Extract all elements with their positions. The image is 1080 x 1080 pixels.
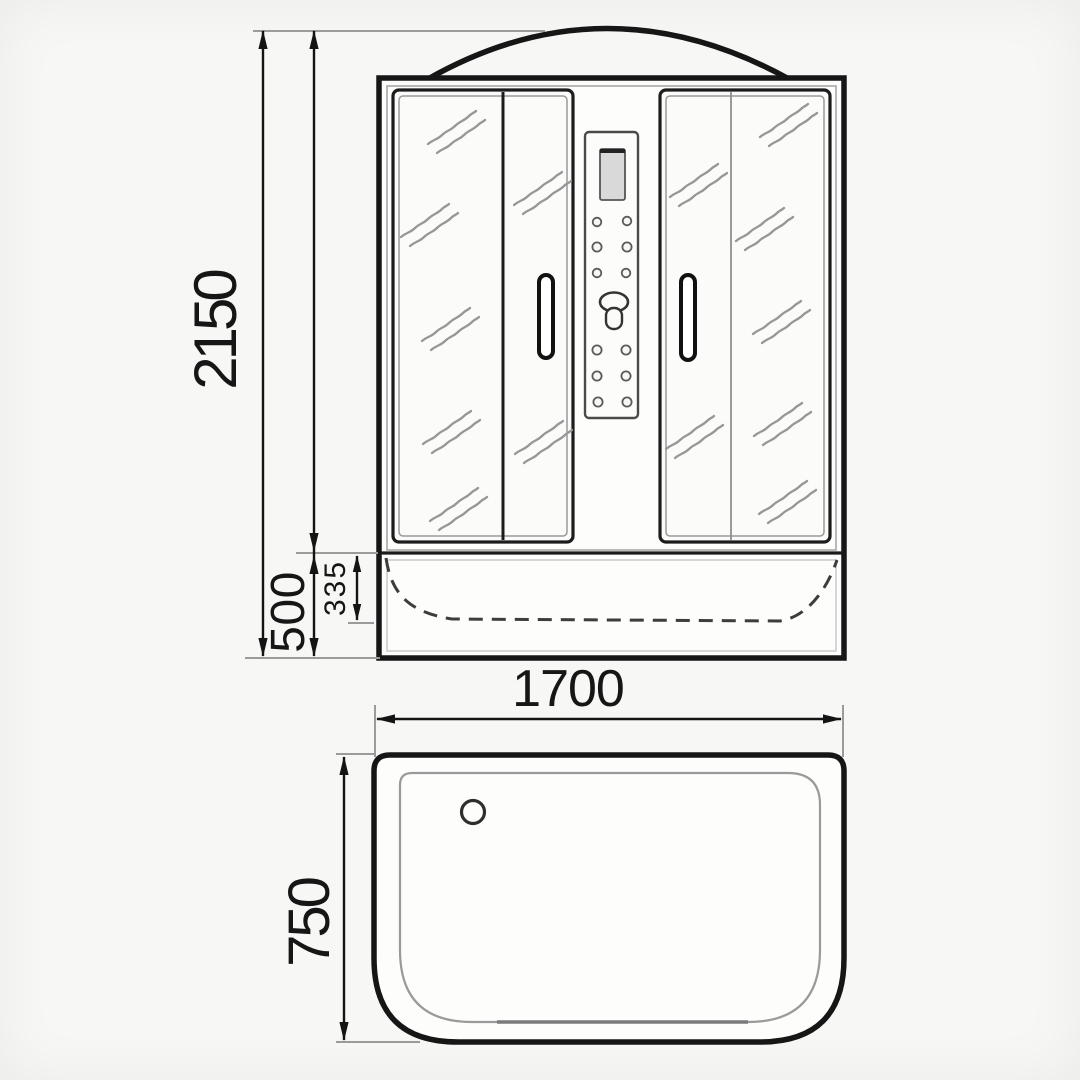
dome-roof-arc — [428, 29, 789, 80]
arrowhead-icon — [823, 714, 842, 723]
arrowhead-icon — [353, 604, 361, 621]
control-button — [592, 345, 601, 354]
arrowhead-icon — [339, 1022, 348, 1041]
door-handle-icon — [539, 275, 553, 358]
right-glass-door-group — [660, 90, 830, 542]
dim-label-tray-height: 500 — [265, 571, 313, 653]
arrowhead-icon — [309, 533, 318, 552]
dim-label-overall-depth: 750 — [281, 879, 339, 967]
control-button — [623, 217, 632, 226]
control-button — [621, 371, 630, 380]
control-button — [593, 218, 602, 227]
arrowhead-icon — [309, 30, 318, 49]
arrowhead-icon — [258, 30, 267, 49]
control-button — [593, 397, 602, 406]
dim-label-overall-width: 1700 — [512, 663, 624, 715]
display-screen — [600, 149, 625, 200]
top-view — [374, 755, 844, 1042]
shower-cabin-dimension-drawing: 2150 500 335 1700 750 — [0, 0, 1080, 1080]
control-button — [592, 242, 601, 251]
control-button — [593, 269, 602, 278]
control-button — [622, 397, 631, 406]
front-view — [379, 29, 844, 659]
control-button — [622, 242, 631, 251]
control-button — [622, 269, 631, 278]
control-button — [592, 371, 601, 380]
tray-plan-outline — [374, 755, 844, 1042]
dim-label-basin-inner-depth: 335 — [321, 560, 351, 616]
dim-label-overall-height: 2150 — [186, 272, 246, 389]
drawing-linework — [0, 0, 1080, 1080]
arrowhead-icon — [376, 714, 395, 723]
control-button — [621, 345, 630, 354]
door-handle-icon — [681, 275, 695, 360]
control-panel — [585, 132, 638, 418]
arrowhead-icon — [353, 555, 361, 572]
left-glass-door-group — [393, 90, 573, 542]
arrowhead-icon — [339, 756, 348, 775]
